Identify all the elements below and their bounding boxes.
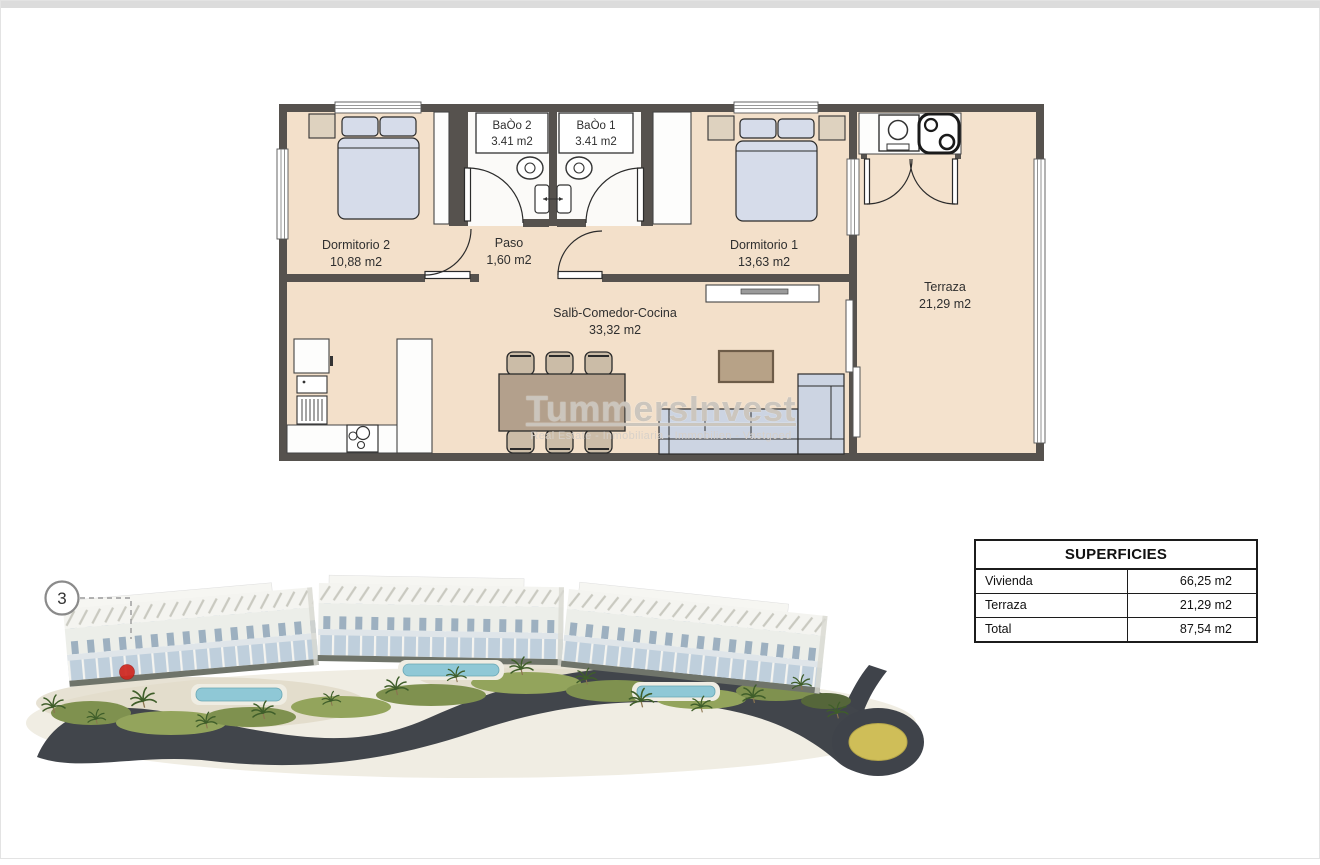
row-label: Vivienda <box>976 570 1128 593</box>
label-dormitorio1-area: 13,63 m2 <box>738 255 790 269</box>
label-bano2-name: BaÒo 2 <box>493 119 532 132</box>
pool-icon <box>637 686 715 697</box>
mattress-icon <box>736 141 817 221</box>
floorplan-and-siteplan-svg: Dormitorio 2 10,88 m2 Paso 1,60 m2 Dormi… <box>1 1 1320 860</box>
label-terraza-name: Terraza <box>924 280 966 294</box>
fridge-column <box>397 339 432 453</box>
wardrobe-dorm1 <box>653 112 691 224</box>
row-label: Total <box>976 618 1128 641</box>
rug-icon <box>719 351 773 382</box>
toilet-icon <box>517 157 543 179</box>
kitchen-counter <box>287 425 397 453</box>
label-dormitorio2-area: 10,88 m2 <box>330 255 382 269</box>
floor-plan: Dormitorio 2 10,88 m2 Paso 1,60 m2 Dormi… <box>277 102 1045 461</box>
kitchen-sink-icon <box>297 376 327 393</box>
nightstand-icon <box>309 114 335 138</box>
top-window-edge <box>1 1 1320 8</box>
label-dormitorio1-name: Dormitorio 1 <box>730 238 798 252</box>
nightstand-icon <box>708 116 734 140</box>
wardrobe-dorm2 <box>434 112 449 224</box>
roundabout-center <box>849 724 907 761</box>
kitchen-cabinet <box>294 339 329 373</box>
dining-set <box>499 352 625 453</box>
label-salon-area: 33,32 m2 <box>589 323 641 337</box>
superficies-table: SUPERFICIES Vivienda 66,25 m2 Terraza 21… <box>974 539 1258 643</box>
window-dorm2 <box>335 102 421 113</box>
site-render <box>26 575 924 778</box>
label-paso-area: 1,60 m2 <box>486 253 531 267</box>
table-row: Vivienda 66,25 m2 <box>976 570 1256 594</box>
unit-number-text: 3 <box>57 589 66 608</box>
dish-rack-icon <box>297 396 327 424</box>
pillow-icon <box>380 117 416 136</box>
apartment-block-left <box>62 579 319 686</box>
row-value: 21,29 m2 <box>1128 594 1256 617</box>
label-dormitorio2-name: Dormitorio 2 <box>322 238 390 252</box>
dining-table-icon <box>499 374 625 431</box>
label-bano1-name: BaÒo 1 <box>577 119 616 132</box>
nightstand-icon <box>819 116 845 140</box>
superficies-table-title: SUPERFICIES <box>976 541 1256 570</box>
toilet-icon <box>566 157 592 179</box>
pool-icon <box>196 688 282 701</box>
unit-location-marker <box>120 665 135 680</box>
row-value: 87,54 m2 <box>1128 618 1256 641</box>
table-row: Total 87,54 m2 <box>976 618 1256 641</box>
pillow-icon <box>740 119 776 138</box>
row-value: 66,25 m2 <box>1128 570 1256 593</box>
window-terraza-right <box>1034 159 1045 443</box>
table-row: Terraza 21,29 m2 <box>976 594 1256 618</box>
row-label: Terraza <box>976 594 1128 617</box>
label-paso-name: Paso <box>495 236 524 250</box>
label-salon-name: Salḃ-Comedor-Cocina <box>553 306 677 320</box>
mattress-icon <box>338 138 419 219</box>
apartment-block-middle <box>318 575 564 665</box>
tv-icon <box>741 289 788 294</box>
pillow-icon <box>342 117 378 136</box>
page-canvas: Dormitorio 2 10,88 m2 Paso 1,60 m2 Dormi… <box>0 0 1320 859</box>
label-bano1-area: 3.41 m2 <box>575 136 617 148</box>
pillow-icon <box>778 119 814 138</box>
label-terraza-area: 21,29 m2 <box>919 297 971 311</box>
window-left-wall <box>277 149 288 239</box>
label-bano2-area: 3.41 m2 <box>491 136 533 148</box>
window-dorm1 <box>734 102 818 113</box>
window-dorm1-terraza <box>847 159 859 235</box>
utility-corner <box>859 113 961 154</box>
